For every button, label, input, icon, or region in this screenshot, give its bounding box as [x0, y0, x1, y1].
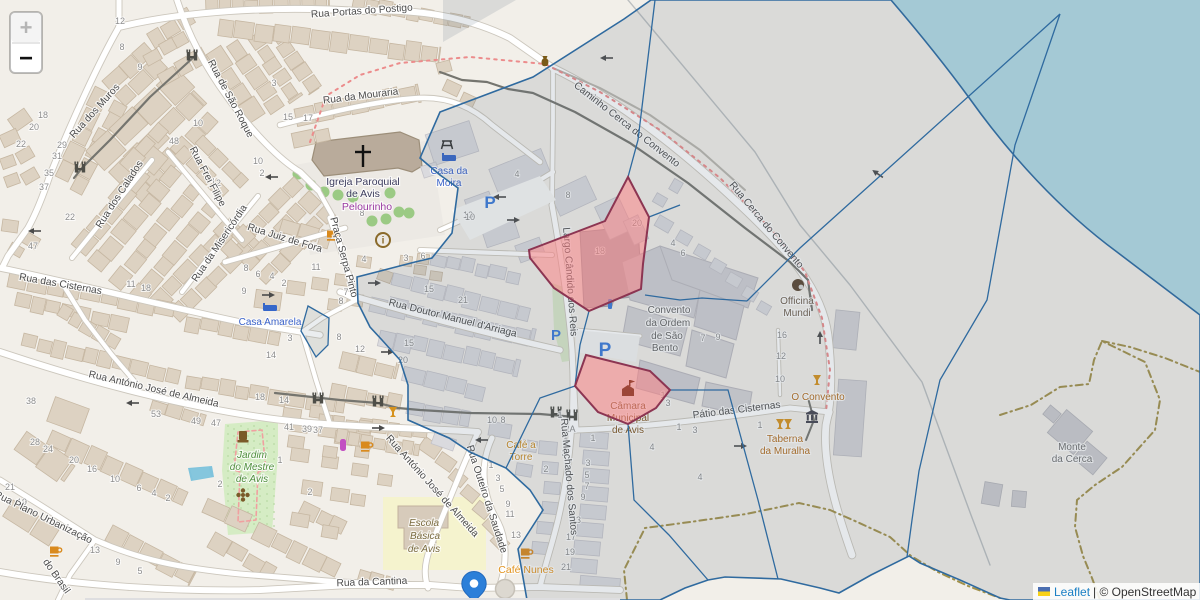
svg-text:1: 1: [277, 455, 282, 465]
svg-text:18: 18: [38, 110, 48, 120]
svg-text:9: 9: [241, 286, 246, 296]
svg-text:31: 31: [52, 151, 62, 161]
svg-text:5: 5: [499, 484, 504, 494]
svg-text:17: 17: [303, 113, 313, 123]
svg-text:Jardim: Jardim: [236, 450, 267, 461]
svg-text:Igreja Paroquial: Igreja Paroquial: [326, 176, 400, 188]
svg-text:11: 11: [311, 262, 320, 272]
svg-text:28: 28: [30, 437, 40, 447]
svg-text:48: 48: [169, 136, 179, 146]
svg-text:14: 14: [266, 350, 276, 360]
svg-text:14: 14: [279, 395, 289, 405]
svg-text:8: 8: [336, 332, 341, 342]
svg-text:8: 8: [338, 296, 343, 306]
svg-text:+: +: [20, 15, 33, 40]
svg-text:49: 49: [191, 416, 201, 426]
svg-text:2: 2: [165, 493, 170, 503]
svg-text:8: 8: [243, 263, 248, 273]
svg-text:41: 41: [284, 422, 294, 432]
svg-text:18: 18: [255, 392, 265, 402]
svg-text:16: 16: [87, 464, 97, 474]
svg-text:3: 3: [287, 333, 292, 343]
svg-text:2: 2: [281, 278, 286, 288]
svg-text:38: 38: [26, 396, 36, 406]
svg-text:22: 22: [16, 139, 26, 149]
svg-text:4: 4: [361, 254, 366, 264]
svg-text:35: 35: [44, 168, 54, 178]
svg-text:53: 53: [151, 409, 161, 419]
svg-text:Básica: Básica: [410, 531, 440, 542]
svg-text:4: 4: [269, 271, 274, 281]
svg-text:11: 11: [505, 509, 514, 519]
svg-text:22: 22: [65, 212, 75, 222]
svg-text:8: 8: [119, 42, 124, 52]
svg-text:9: 9: [115, 557, 120, 567]
svg-text:10: 10: [253, 156, 263, 166]
svg-text:47: 47: [211, 418, 221, 428]
svg-text:20: 20: [29, 122, 39, 132]
svg-text:20: 20: [69, 455, 79, 465]
svg-text:3: 3: [271, 78, 276, 88]
svg-text:5: 5: [137, 566, 142, 576]
svg-text:24: 24: [43, 444, 53, 454]
svg-text:10: 10: [193, 118, 203, 128]
svg-text:18: 18: [141, 283, 151, 293]
svg-text:4: 4: [151, 488, 156, 498]
svg-text:15: 15: [283, 112, 293, 122]
svg-text:37: 37: [313, 425, 323, 435]
svg-text:2: 2: [307, 487, 312, 497]
svg-text:6: 6: [255, 269, 260, 279]
svg-text:Escola: Escola: [409, 518, 439, 529]
svg-text:3: 3: [403, 253, 408, 263]
svg-text:11: 11: [126, 279, 135, 289]
svg-text:21: 21: [5, 482, 15, 492]
svg-text:29: 29: [57, 140, 67, 150]
svg-text:Leaflet: Leaflet: [1054, 585, 1091, 599]
svg-text:13: 13: [90, 545, 100, 555]
svg-text:2: 2: [259, 168, 264, 178]
svg-text:Casa Amarela: Casa Amarela: [239, 317, 302, 328]
svg-text:i: i: [382, 236, 385, 247]
svg-text:37: 37: [39, 182, 49, 192]
svg-text:6: 6: [136, 483, 141, 493]
svg-text:do Mestre: do Mestre: [230, 462, 275, 473]
svg-text:13: 13: [511, 530, 521, 540]
svg-text:−: −: [19, 45, 33, 72]
svg-text:9: 9: [505, 499, 510, 509]
svg-text:de Avis: de Avis: [346, 188, 380, 200]
svg-text:12: 12: [115, 16, 125, 26]
svg-text:2: 2: [217, 479, 222, 489]
svg-text:9: 9: [137, 62, 142, 72]
svg-text:de Avis: de Avis: [236, 474, 268, 485]
svg-text:| © OpenStreetMap: | © OpenStreetMap: [1093, 585, 1197, 599]
svg-text:39: 39: [302, 424, 312, 434]
svg-text:Pelourinho: Pelourinho: [342, 201, 392, 213]
svg-text:47: 47: [28, 241, 38, 251]
svg-text:10: 10: [110, 474, 120, 484]
svg-text:de Avis: de Avis: [408, 544, 440, 555]
svg-text:12: 12: [355, 344, 365, 354]
svg-text:3: 3: [495, 473, 500, 483]
